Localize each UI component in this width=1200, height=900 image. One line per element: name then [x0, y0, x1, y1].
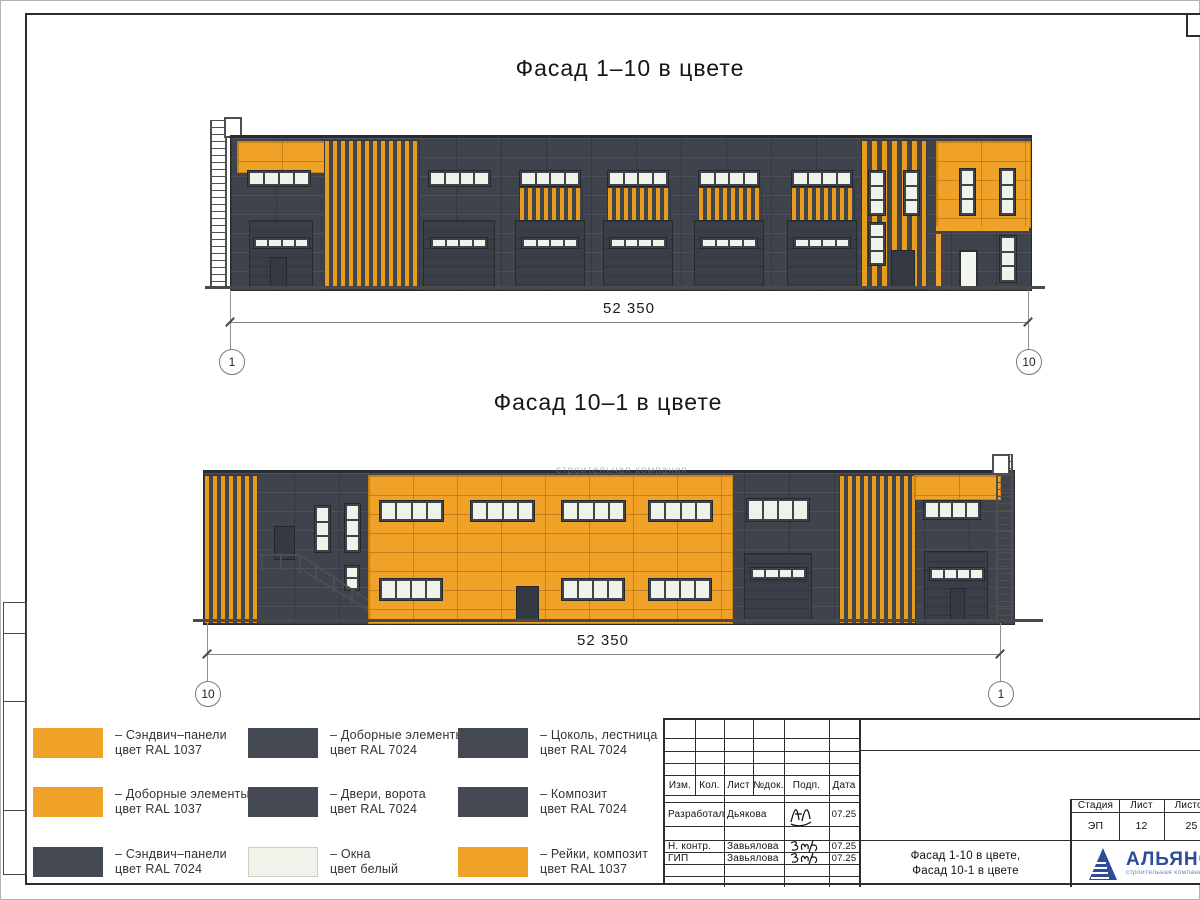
- tall-window: [868, 170, 886, 216]
- entrance-door-white: [959, 250, 978, 288]
- legend-swatch: [458, 787, 528, 817]
- tb-name: Дьякова: [724, 802, 784, 826]
- legend-swatch: [33, 787, 103, 817]
- tb-col-data: Дата: [829, 775, 859, 795]
- gate-window-strip: [253, 237, 310, 249]
- window-strip: [698, 170, 760, 187]
- tall-window: [999, 168, 1016, 216]
- axis-marker-left: 1: [219, 349, 245, 375]
- window-strip: [923, 500, 981, 520]
- tb-name: Завьялова: [724, 840, 784, 852]
- legend-swatch: [458, 728, 528, 758]
- orange-trim: [936, 226, 1029, 231]
- frame-corner-box: [1186, 13, 1200, 37]
- dimension-line: [230, 322, 1028, 323]
- tall-window: [903, 170, 920, 216]
- sectional-gate: [603, 220, 673, 288]
- roof-ladder-cap: [992, 454, 1010, 475]
- legend-item: – Рейки, композитцвет RAL 1037: [540, 847, 648, 877]
- legend-item: – Композитцвет RAL 7024: [540, 787, 627, 817]
- axis-marker-right: 10: [1016, 349, 1042, 375]
- tb-name: Завьялова: [724, 852, 784, 864]
- gate-window-strip: [793, 237, 851, 249]
- dimension-line: [207, 654, 1000, 655]
- legend-item: – Цоколь, лестницацвет RAL 7024: [540, 728, 657, 758]
- ground-line: [205, 286, 1045, 289]
- window-strip: [561, 500, 626, 522]
- window-strip: [607, 170, 669, 187]
- legend-item: – Двери, воротацвет RAL 7024: [330, 787, 426, 817]
- tb-sheets-value: 25: [1164, 812, 1200, 840]
- tb-doc-title: Фасад 1-10 в цвете, Фасад 10-1 в цвете: [861, 840, 1070, 887]
- louver-band: [839, 475, 916, 624]
- signature-scribble: [787, 804, 825, 826]
- facade-top-building: [230, 135, 1032, 291]
- sectional-gate: [924, 551, 988, 622]
- gate-window-strip: [750, 567, 807, 580]
- axis-marker-right: 1: [988, 681, 1014, 707]
- company-logo: АЛЬЯНС строительная компания: [1072, 840, 1200, 887]
- tb-col-list: Лист: [724, 775, 753, 795]
- tall-window: [868, 222, 886, 266]
- window-strip: [379, 578, 443, 601]
- logo-pyramid-icon: [1088, 847, 1118, 881]
- tb-col-podp: Подп.: [784, 775, 829, 795]
- sectional-gate: [423, 220, 495, 288]
- sectional-gate: [787, 220, 857, 288]
- legend-swatch: [33, 847, 103, 877]
- window-strip: [746, 498, 810, 522]
- orange-top-band: [914, 475, 1001, 500]
- facade-bottom-title: Фасад 10–1 в цвете: [203, 389, 1013, 416]
- dimension-value: 52 350: [503, 632, 703, 649]
- tb-role: Разработал: [665, 802, 724, 826]
- facade-top-title: Фасад 1–10 в цвете: [230, 55, 1030, 82]
- sectional-gate: [249, 220, 313, 288]
- legend-swatch: [458, 847, 528, 877]
- ground-line: [193, 619, 1043, 622]
- window-strip: [519, 170, 581, 187]
- facade-bottom-building: строительная компания: [203, 470, 1015, 625]
- tb-role: ГИП: [665, 852, 724, 864]
- legend-item: – Доборные элементыцвет RAL 7024: [330, 728, 465, 758]
- gate-window-strip: [929, 567, 985, 581]
- roof-ladder-right: [996, 454, 1013, 622]
- legend-item: – Доборные элементыцвет RAL 1037: [115, 787, 250, 817]
- tall-window: [999, 235, 1017, 283]
- orange-facing-panel: [237, 141, 325, 173]
- wicket-door: [950, 588, 965, 622]
- window-strip: [561, 578, 625, 601]
- gate-window-strip: [430, 237, 488, 249]
- legend-item: – Сэндвич–панелицвет RAL 7024: [115, 847, 227, 877]
- legend-swatch: [248, 787, 318, 817]
- tb-sheets-label: Листов: [1164, 799, 1200, 812]
- tb-col-ndok: №док.: [753, 775, 784, 795]
- orange-trim: [936, 234, 941, 288]
- window-strip: [470, 500, 535, 522]
- tb-role: Н. контр.: [665, 840, 724, 852]
- tb-stage-label: Стадия: [1072, 799, 1119, 812]
- tb-sheet-value: 12: [1119, 812, 1164, 840]
- dimension-value: 52 350: [529, 300, 729, 317]
- dark-door: [891, 250, 915, 288]
- sectional-gate: [694, 220, 764, 288]
- gate-window-strip: [700, 237, 758, 249]
- window-strip: [648, 500, 713, 522]
- orange-sandwich-section: [368, 475, 733, 624]
- legend-swatch: [248, 728, 318, 758]
- title-block: Изм. Кол. Лист №док. Подп. Дата Разработ…: [663, 718, 1200, 885]
- tb-col-izm: Изм.: [665, 775, 695, 795]
- gate-window-strip: [521, 237, 579, 249]
- sectional-gate: [515, 220, 585, 288]
- tb-date: 07.25: [829, 852, 859, 864]
- sectional-gate: [744, 553, 812, 622]
- tb-date: 07.25: [829, 802, 859, 826]
- logo-subtitle: строительная компания: [1126, 869, 1200, 876]
- signature-scribble: [789, 851, 823, 865]
- legend-item: – Сэндвич–панелицвет RAL 1037: [115, 728, 227, 758]
- tb-date: 07.25: [829, 840, 859, 852]
- window-strip: [379, 500, 444, 522]
- louver-band: [204, 475, 258, 624]
- legend-item: – Окнацвет белый: [330, 847, 398, 877]
- gate-window-strip: [609, 237, 667, 249]
- orange-end-block: [936, 141, 1031, 228]
- tall-window: [959, 168, 976, 216]
- tb-col-kol: Кол.: [695, 775, 724, 795]
- roof-ladder-left: [210, 120, 227, 287]
- logo-text: АЛЬЯНС: [1126, 851, 1200, 869]
- tb-sheet-label: Лист: [1119, 799, 1164, 812]
- tb-stage-value: ЭП: [1072, 812, 1119, 840]
- window-strip: [791, 170, 853, 187]
- dark-door: [516, 586, 539, 622]
- left-margin-boxes: [3, 602, 27, 875]
- legend-swatch: [248, 847, 318, 877]
- louver-band: [324, 140, 420, 290]
- axis-marker-left: 10: [195, 681, 221, 707]
- wicket-door: [270, 257, 287, 289]
- window-strip: [648, 578, 712, 601]
- window-strip: [247, 170, 311, 187]
- legend-swatch: [33, 728, 103, 758]
- window-strip: [428, 170, 491, 187]
